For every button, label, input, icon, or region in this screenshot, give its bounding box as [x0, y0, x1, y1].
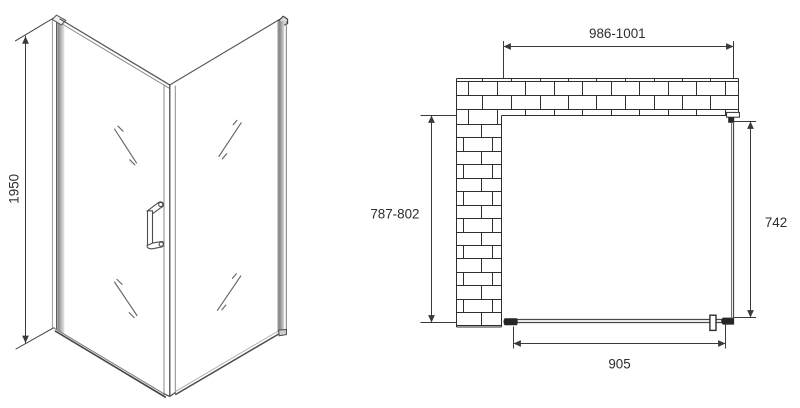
- svg-text:1950: 1950: [7, 174, 22, 204]
- svg-text:986-1001: 986-1001: [589, 26, 646, 41]
- svg-text:905: 905: [608, 357, 630, 372]
- svg-text:742: 742: [765, 215, 787, 230]
- svg-text:787-802: 787-802: [370, 207, 419, 222]
